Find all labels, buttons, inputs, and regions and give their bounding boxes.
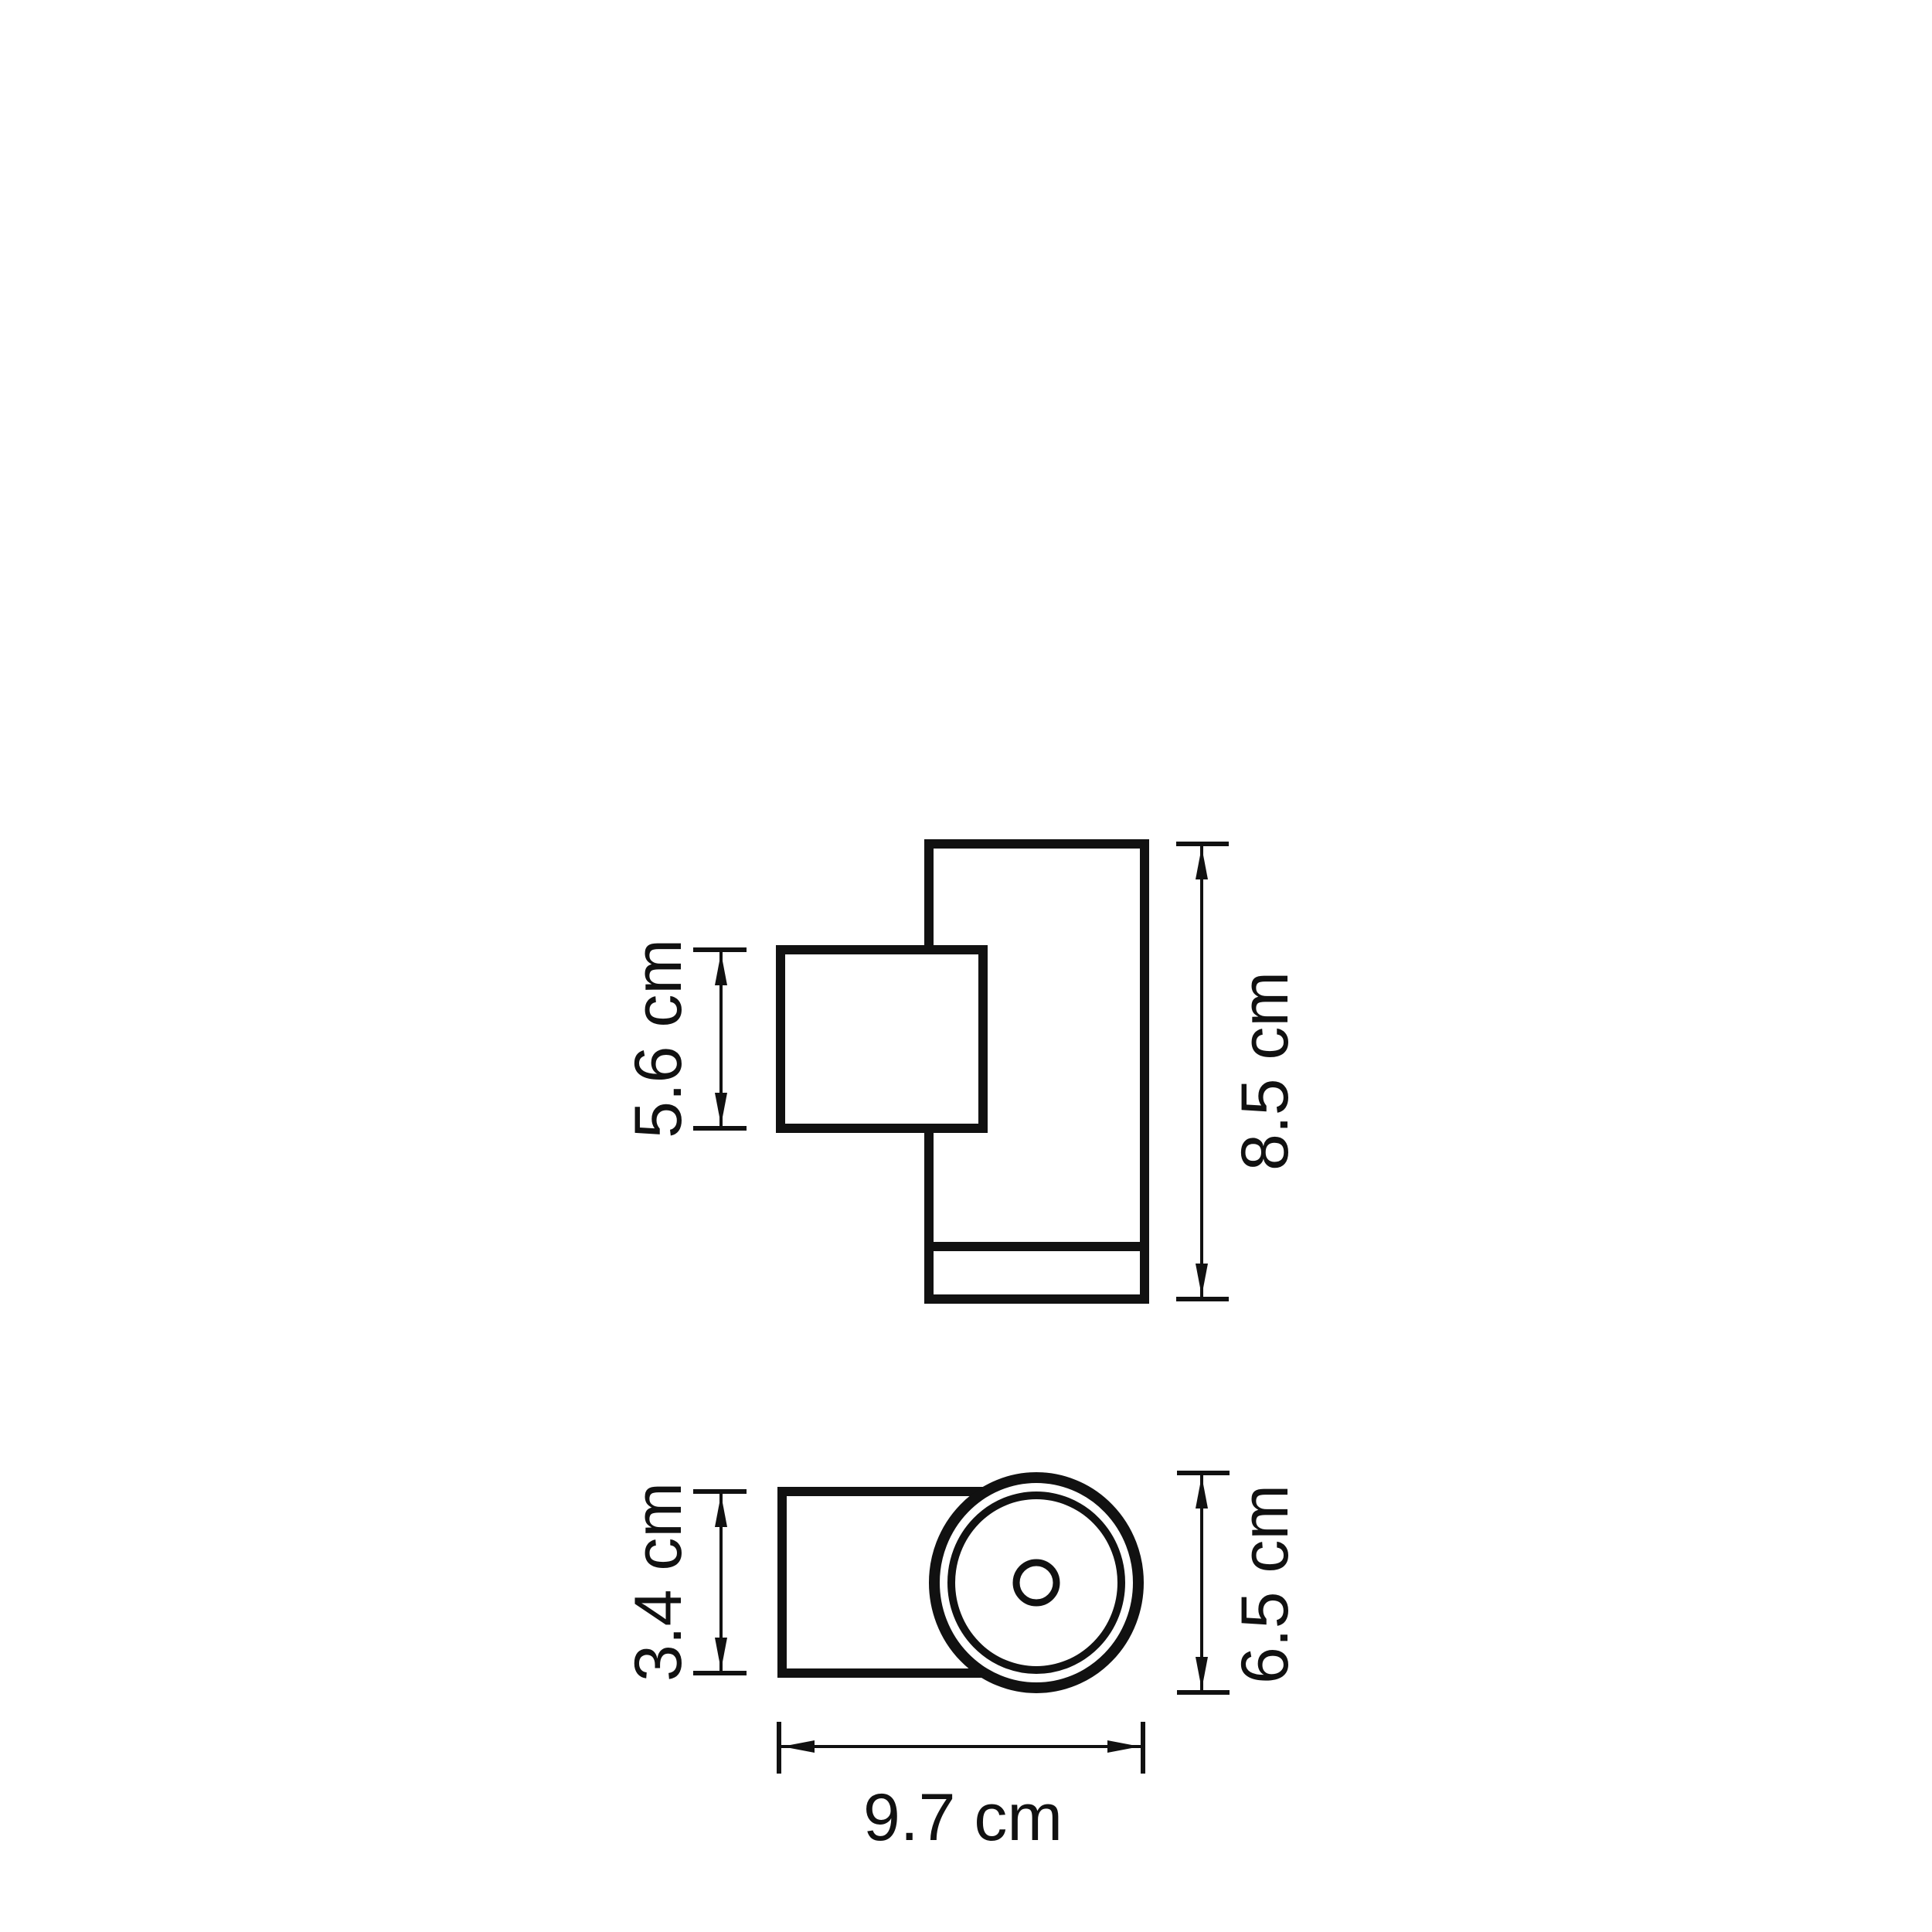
dimension-9-7: 9.7 cm — [779, 1722, 1143, 1855]
top-plan-view: 3.4 cm 6.5 cm 9.7 cm — [621, 1473, 1302, 1855]
cylinder-center-hub — [1016, 1563, 1056, 1603]
arrow-up-icon — [715, 1495, 727, 1527]
arrow-up-icon — [1196, 1476, 1208, 1509]
arrow-down-icon — [1196, 1264, 1208, 1296]
diagram-canvas: 5.6 cm 8.5 cm — [0, 0, 1932, 1932]
dimension-drawing: 5.6 cm 8.5 cm — [0, 0, 1932, 1932]
dimension-label-total-depth: 9.7 cm — [863, 1781, 1063, 1855]
arrow-down-icon — [715, 1638, 727, 1670]
arrow-down-icon — [1196, 1657, 1208, 1689]
dimension-label-bracket-height: 5.6 cm — [621, 939, 696, 1138]
dimension-label-bracket-depth: 3.4 cm — [621, 1482, 696, 1682]
dimension-6-5: 6.5 cm — [1177, 1473, 1302, 1692]
arrow-down-icon — [715, 1093, 727, 1125]
dimension-label-body-height: 8.5 cm — [1228, 971, 1302, 1171]
dimension-label-body-diameter: 6.5 cm — [1228, 1485, 1302, 1684]
arrow-up-icon — [1196, 847, 1208, 879]
front-elevation-view: 5.6 cm 8.5 cm — [621, 844, 1302, 1299]
dimension-8-5: 8.5 cm — [1176, 844, 1302, 1299]
dimension-5-6: 5.6 cm — [621, 939, 747, 1138]
mount-bracket-outline — [781, 950, 983, 1128]
dimension-3-4: 3.4 cm — [621, 1482, 747, 1682]
arrow-left-icon — [782, 1740, 815, 1753]
arrow-up-icon — [715, 953, 727, 985]
arrow-right-icon — [1107, 1740, 1140, 1753]
